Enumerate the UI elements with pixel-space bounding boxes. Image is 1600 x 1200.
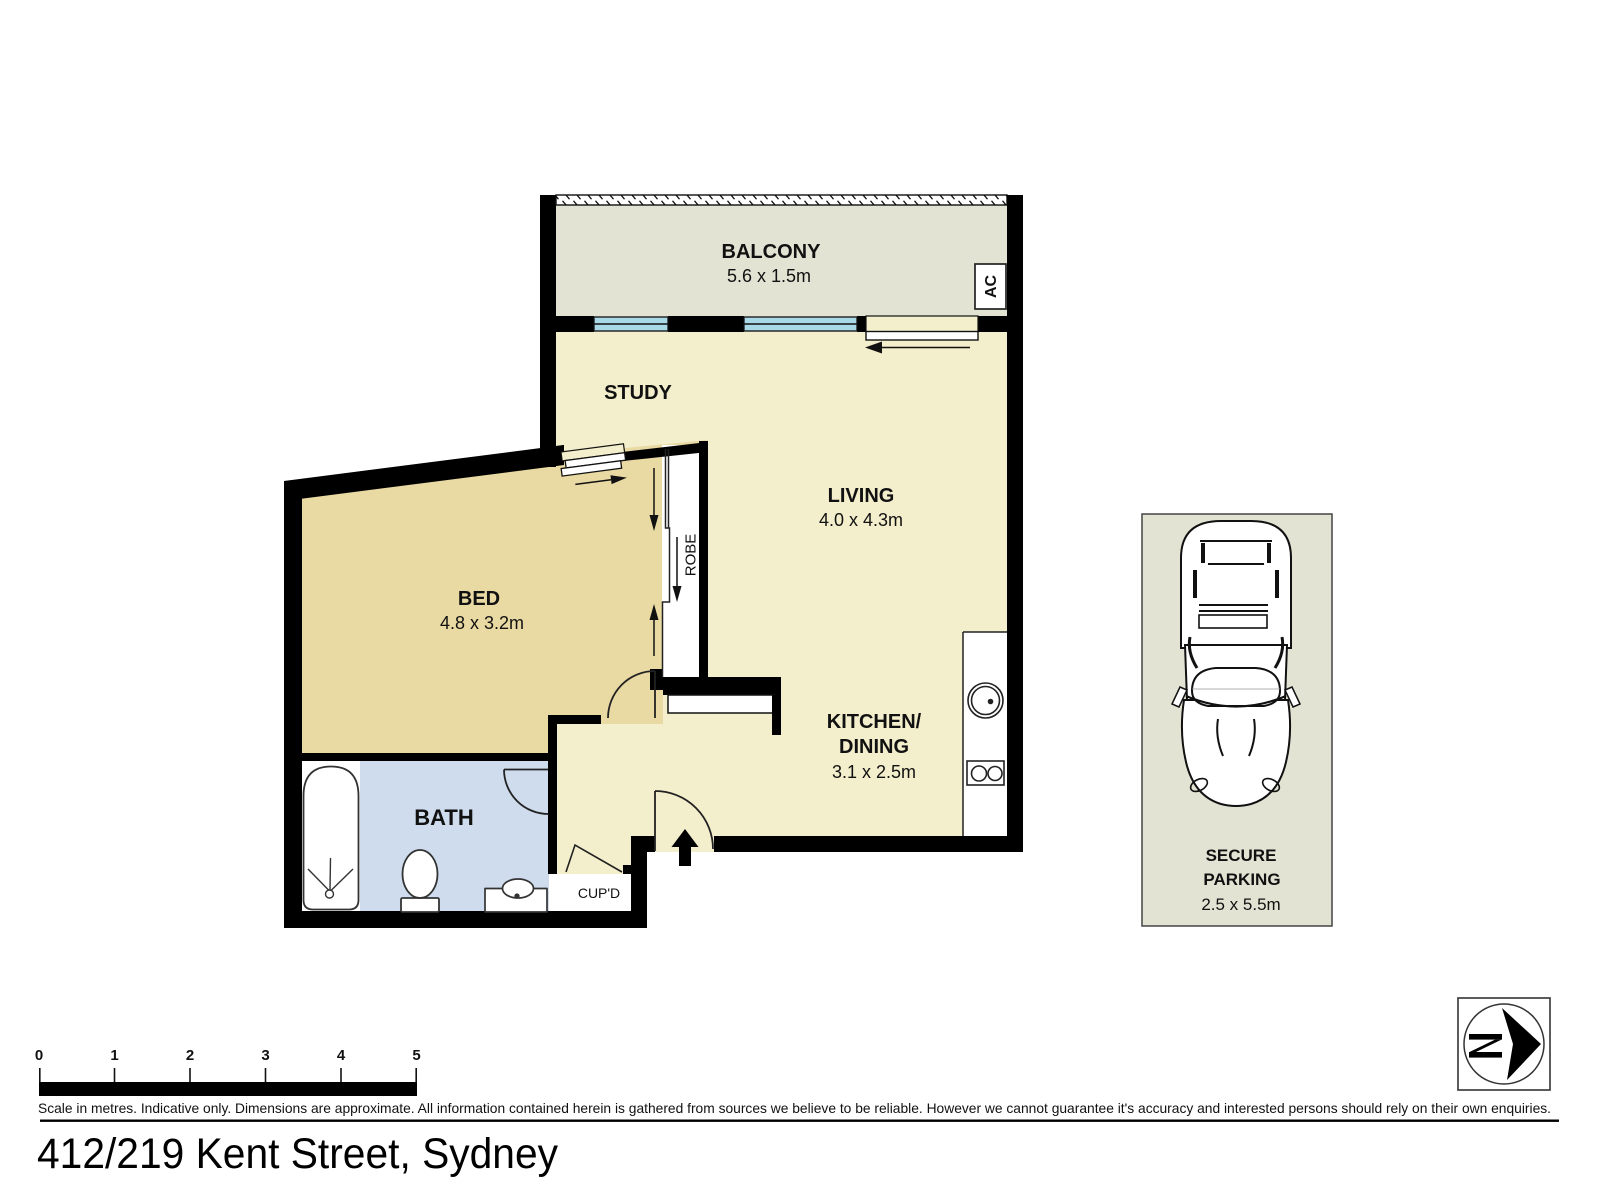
svg-text:0: 0 (35, 1047, 43, 1064)
svg-text:CUP'D: CUP'D (578, 885, 620, 901)
svg-text:2.5 x 5.5m: 2.5 x 5.5m (1201, 895, 1280, 914)
svg-text:Scale in metres. Indicative on: Scale in metres. Indicative only. Dimens… (38, 1100, 1551, 1116)
svg-text:KITCHEN/: KITCHEN/ (827, 711, 922, 733)
svg-text:5.6 x 1.5m: 5.6 x 1.5m (727, 266, 811, 286)
svg-text:412/219 Kent Street, Sydney: 412/219 Kent Street, Sydney (37, 1131, 559, 1178)
svg-text:4: 4 (337, 1047, 346, 1064)
svg-text:BED: BED (458, 588, 500, 610)
svg-text:PARKING: PARKING (1203, 870, 1280, 889)
svg-text:3.1 x 2.5m: 3.1 x 2.5m (832, 762, 916, 782)
svg-text:4.8 x 3.2m: 4.8 x 3.2m (440, 613, 524, 633)
svg-text:BALCONY: BALCONY (722, 241, 822, 263)
svg-text:DINING: DINING (839, 736, 909, 758)
svg-text:5: 5 (412, 1047, 420, 1064)
svg-text:3: 3 (261, 1047, 269, 1064)
svg-text:LIVING: LIVING (828, 485, 895, 507)
svg-text:2: 2 (186, 1047, 194, 1064)
svg-text:ROBE: ROBE (683, 534, 700, 577)
svg-text:1: 1 (110, 1047, 118, 1064)
svg-text:STUDY: STUDY (604, 382, 672, 404)
svg-text:SECURE: SECURE (1206, 846, 1277, 865)
svg-text:BATH: BATH (414, 805, 473, 830)
svg-text:4.0 x 4.3m: 4.0 x 4.3m (819, 510, 903, 530)
svg-text:AC: AC (983, 275, 1000, 299)
